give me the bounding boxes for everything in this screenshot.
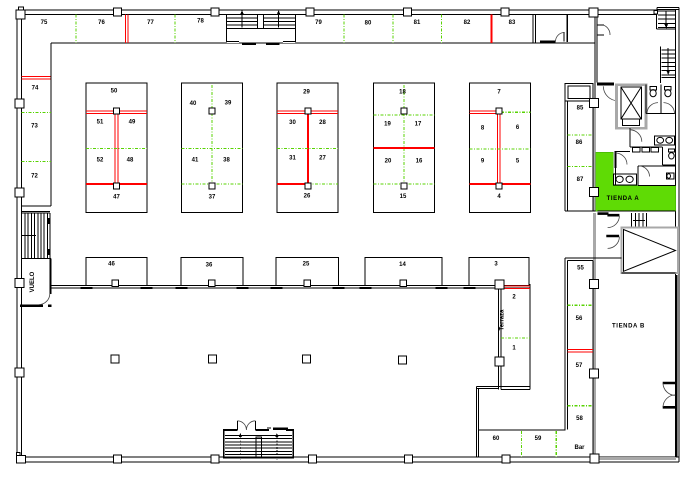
svg-text:25: 25	[303, 262, 310, 268]
svg-text:74: 74	[32, 86, 39, 92]
svg-text:VUELO: VUELO	[30, 271, 36, 292]
svg-text:52: 52	[97, 158, 104, 164]
svg-text:82: 82	[464, 20, 471, 26]
svg-text:29: 29	[303, 90, 310, 96]
svg-text:86: 86	[576, 140, 583, 146]
svg-text:79: 79	[315, 20, 322, 26]
svg-text:80: 80	[365, 21, 372, 27]
svg-text:41: 41	[192, 158, 199, 164]
svg-text:78: 78	[197, 19, 204, 25]
svg-text:59: 59	[535, 436, 542, 442]
svg-text:57: 57	[576, 363, 583, 369]
svg-text:75: 75	[41, 20, 48, 26]
svg-text:49: 49	[129, 120, 136, 126]
svg-text:20: 20	[385, 159, 392, 165]
svg-text:37: 37	[209, 195, 216, 201]
svg-text:81: 81	[414, 20, 421, 26]
svg-text:60: 60	[493, 436, 500, 442]
svg-text:39: 39	[225, 101, 232, 107]
svg-text:85: 85	[577, 106, 584, 112]
svg-text:15: 15	[400, 194, 407, 200]
svg-text:55: 55	[577, 266, 584, 272]
svg-text:Bar: Bar	[574, 445, 585, 451]
svg-text:26: 26	[304, 194, 311, 200]
svg-text:56: 56	[576, 316, 583, 322]
svg-text:28: 28	[319, 120, 326, 126]
svg-text:46: 46	[108, 262, 115, 268]
svg-text:48: 48	[127, 158, 134, 164]
svg-text:87: 87	[577, 177, 584, 183]
svg-text:27: 27	[319, 156, 326, 162]
svg-text:38: 38	[223, 158, 230, 164]
svg-text:Terraza: Terraza	[500, 309, 506, 331]
svg-text:TIENDA A: TIENDA A	[607, 196, 640, 202]
svg-text:72: 72	[31, 174, 38, 180]
svg-text:50: 50	[111, 89, 118, 95]
svg-text:TIENDA B: TIENDA B	[612, 324, 645, 330]
svg-text:18: 18	[399, 90, 406, 96]
svg-text:76: 76	[98, 20, 105, 26]
svg-text:36: 36	[206, 263, 213, 269]
svg-text:14: 14	[399, 262, 406, 268]
svg-text:83: 83	[509, 20, 516, 26]
svg-text:73: 73	[31, 124, 38, 130]
svg-text:58: 58	[576, 416, 583, 422]
svg-text:47: 47	[113, 195, 120, 201]
svg-text:17: 17	[415, 122, 422, 128]
svg-text:40: 40	[190, 101, 197, 107]
svg-text:16: 16	[416, 159, 423, 165]
svg-text:51: 51	[97, 120, 104, 126]
svg-text:77: 77	[147, 20, 154, 26]
svg-text:31: 31	[289, 156, 296, 162]
svg-text:30: 30	[289, 120, 296, 126]
svg-text:19: 19	[384, 122, 391, 128]
